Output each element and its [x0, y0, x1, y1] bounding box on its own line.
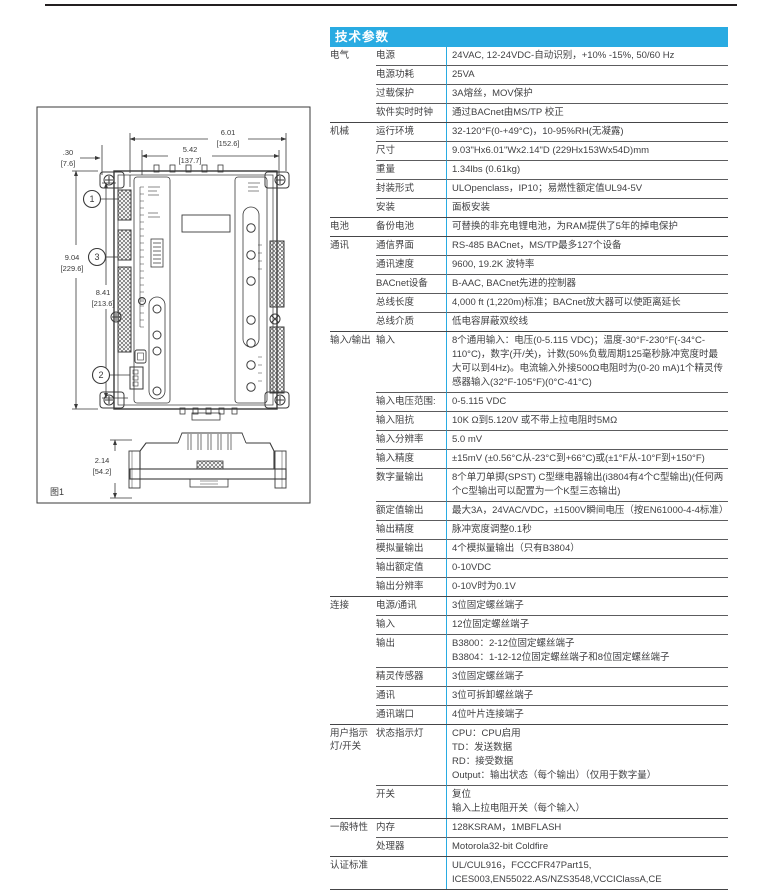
label-cell: 输出分辨率 — [376, 577, 446, 596]
table-row: 尺寸9.03"Hx6.01"Wx2.14"D (229Hx153Wx54D)mm — [330, 141, 728, 160]
label-cell: 处理器 — [376, 837, 446, 856]
value-cell: 0-10VDC — [446, 558, 728, 577]
dim-depth-in: 2.14 — [95, 456, 110, 465]
dim-width-mm: [152.6] — [217, 139, 240, 148]
table-row: 输出分辨率0-10V时为0.1V — [330, 577, 728, 596]
dim-height-in: 9.04 — [65, 253, 80, 262]
spec-group: 认证标准UL/CUL916，FCCCFR47Part15, ICES003,EN… — [330, 856, 728, 889]
label-cell: 内存 — [376, 819, 446, 837]
dimension-labels: 6.01 [152.6] 5.42 [137.7] .30 [7.6] 9.04… — [61, 128, 240, 476]
value-line: 0-10V时为0.1V — [452, 580, 726, 594]
value-line: 3A熔丝，MOV保护 — [452, 87, 726, 101]
spec-group: 用户指示灯/开关状态指示灯CPU：CPU启用TD：发送数据RD：接受数据Outp… — [330, 724, 728, 818]
table-row: 重量1.34lbs (0.61kg) — [330, 160, 728, 179]
value-line: 8个单刀单掷(SPST) C型继电器输出(i3804有4个C型输出)(任何两个C… — [452, 471, 726, 499]
value-line: 低电容屏蔽双绞线 — [452, 315, 726, 329]
category-cell — [330, 430, 376, 449]
value-line: 32-120°F(0-+49°C)，10-95%RH(无凝露) — [452, 125, 726, 139]
category-cell: 连接 — [330, 597, 376, 615]
label-cell: 输入分辨率 — [376, 430, 446, 449]
datasheet-page: { "accent_color": "#29ABE2", "drawing": … — [0, 0, 770, 853]
category-cell — [330, 141, 376, 160]
label-cell: 过载保护 — [376, 84, 446, 103]
value-line: RD：接受数据 — [452, 755, 726, 769]
table-row: 处理器Motorola32-bit Coldfire — [330, 837, 728, 856]
value-line: 4位叶片连接端子 — [452, 708, 726, 722]
table-row: 安装面板安装 — [330, 198, 728, 217]
value-line: 3位固定螺丝端子 — [452, 670, 726, 684]
dim-offset-in: .30 — [63, 148, 73, 157]
value-cell: CPU：CPU启用TD：发送数据RD：接受数据Output：输出状态（每个输出）… — [446, 725, 728, 785]
category-cell — [330, 255, 376, 274]
value-line: Motorola32-bit Coldfire — [452, 840, 726, 854]
svg-text:3: 3 — [94, 252, 99, 262]
label-cell: 输入电压范围: — [376, 392, 446, 411]
label-cell: 输出 — [376, 634, 446, 667]
spec-group: 电气电源24VAC, 12-24VDC-自动识别，+10% -15%, 50/6… — [330, 47, 728, 122]
table-row: 电气电源24VAC, 12-24VDC-自动识别，+10% -15%, 50/6… — [330, 47, 728, 65]
table-row: 总线介质低电容屏蔽双绞线 — [330, 312, 728, 331]
category-cell — [330, 84, 376, 103]
value-line: 最大3A，24VAC/VDC，±1500V瞬间电压（按EN61000-4-4标准… — [452, 504, 726, 518]
category-cell: 用户指示灯/开关 — [330, 725, 376, 785]
label-cell: 电源功耗 — [376, 65, 446, 84]
value-cell: 128KSRAM，1MBFLASH — [446, 819, 728, 837]
spec-group: 连接电源/通讯3位固定螺丝端子输入12位固定螺丝端子输出B3800：2-12位固… — [330, 596, 728, 724]
label-cell: 重量 — [376, 160, 446, 179]
table-row: 输出额定值0-10VDC — [330, 558, 728, 577]
table-row: 封装形式ULOpenclass，IP10；易燃性额定值UL94-5V — [330, 179, 728, 198]
table-row: 通讯3位可拆卸螺丝端子 — [330, 686, 728, 705]
table-row: 一般特性内存128KSRAM，1MBFLASH — [330, 819, 728, 837]
table-row: 通讯通信界面RS-485 BACnet，MS/TP最多127个设备 — [330, 237, 728, 255]
category-cell — [330, 837, 376, 856]
category-cell: 输入/输出 — [330, 332, 376, 392]
spec-group: 机械运行环境32-120°F(0-+49°C)，10-95%RH(无凝露)尺寸9… — [330, 122, 728, 217]
category-cell — [330, 520, 376, 539]
category-cell — [330, 539, 376, 558]
spec-table-body: 电气电源24VAC, 12-24VDC-自动识别，+10% -15%, 50/6… — [330, 47, 728, 890]
label-cell: 电源 — [376, 47, 446, 65]
dim-height-mm: [229.6] — [61, 264, 84, 273]
value-line: 9600, 19.2K 波特率 — [452, 258, 726, 272]
label-window — [182, 215, 230, 232]
category-cell — [330, 468, 376, 501]
category-cell — [330, 179, 376, 198]
category-cell: 认证标准 — [330, 857, 376, 889]
value-line: 128KSRAM，1MBFLASH — [452, 821, 726, 835]
value-cell: 3位固定螺丝端子 — [446, 667, 728, 686]
value-line: B3800：2-12位固定螺丝端子 — [452, 637, 726, 651]
table-row: 额定值输出最大3A，24VAC/VDC，±1500V瞬间电压（按EN61000-… — [330, 501, 728, 520]
value-line: 10K Ω到5.120V 或不带上拉电阻时5MΩ — [452, 414, 726, 428]
value-cell: 可替换的非充电锂电池，为RAM提供了5年的掉电保护 — [446, 218, 728, 236]
table-row: 输入12位固定螺丝端子 — [330, 615, 728, 634]
label-cell: 输入阻抗 — [376, 411, 446, 430]
value-line: 3位固定螺丝端子 — [452, 599, 726, 613]
value-cell: 面板安装 — [446, 198, 728, 217]
value-cell: 3A熔丝，MOV保护 — [446, 84, 728, 103]
front-view — [100, 165, 289, 420]
label-cell: 总线长度 — [376, 293, 446, 312]
drawing-border — [37, 107, 310, 503]
dim-depth-mm: [54.2] — [93, 467, 112, 476]
value-cell: 4位叶片连接端子 — [446, 705, 728, 724]
value-cell: 24VAC, 12-24VDC-自动识别，+10% -15%, 50/60 Hz — [446, 47, 728, 65]
table-row: 软件实时时钟通过BACnet由MS/TP 校正 — [330, 103, 728, 122]
dim-inner-width-mm: [137.7] — [179, 156, 202, 165]
callout-numbers: 1 3 2 — [89, 194, 103, 380]
spec-group: 一般特性内存128KSRAM，1MBFLASH处理器Motorola32-bit… — [330, 818, 728, 856]
value-cell: 3位可拆卸螺丝端子 — [446, 686, 728, 705]
value-cell: 低电容屏蔽双绞线 — [446, 312, 728, 331]
figure-label: 图1 — [50, 487, 64, 497]
label-cell: 通信界面 — [376, 237, 446, 255]
value-line: 12位固定螺丝端子 — [452, 618, 726, 632]
label-cell: 通讯速度 — [376, 255, 446, 274]
label-cell: 输出精度 — [376, 520, 446, 539]
category-cell: 一般特性 — [330, 819, 376, 837]
dim-offset-mm: [7.6] — [61, 159, 76, 168]
table-row: 输入分辨率5.0 mV — [330, 430, 728, 449]
category-cell — [330, 449, 376, 468]
table-row: 精灵传感器3位固定螺丝端子 — [330, 667, 728, 686]
value-cell: ±15mV (±0.56°C从-23°C到+66°C)或(±1°F从-10°F到… — [446, 449, 728, 468]
value-cell: ULOpenclass，IP10；易燃性额定值UL94-5V — [446, 179, 728, 198]
spec-table-title: 技术参数 — [330, 27, 728, 47]
table-row: 通讯端口4位叶片连接端子 — [330, 705, 728, 724]
category-cell — [330, 667, 376, 686]
category-cell: 电气 — [330, 47, 376, 65]
svg-text:1: 1 — [89, 194, 94, 204]
page-top-rule — [45, 4, 737, 6]
dim-inner-width-in: 5.42 — [183, 145, 198, 154]
value-cell: 4个模拟量输出（只有B3804） — [446, 539, 728, 558]
value-line: B3804：1-12-12位固定螺丝端子和8位固定螺丝端子 — [452, 651, 726, 665]
label-cell: 输入 — [376, 332, 446, 392]
value-cell: 4,000 ft (1,220m)标准；BACnet放大器可以使距离延长 — [446, 293, 728, 312]
value-line: 5.0 mV — [452, 433, 726, 447]
label-cell: 备份电池 — [376, 218, 446, 236]
value-line: TD：发送数据 — [452, 741, 726, 755]
category-cell — [330, 312, 376, 331]
value-line: CPU：CPU启用 — [452, 727, 726, 741]
table-row: 过载保护3A熔丝，MOV保护 — [330, 84, 728, 103]
value-line: 4,000 ft (1,220m)标准；BACnet放大器可以使距离延长 — [452, 296, 726, 310]
label-cell: 状态指示灯 — [376, 725, 446, 785]
label-cell: 开关 — [376, 785, 446, 818]
value-line: Output：输出状态（每个输出）（仅用于数字量） — [452, 769, 726, 783]
category-cell — [330, 411, 376, 430]
label-cell: BACnet设备 — [376, 274, 446, 293]
value-cell: B-AAC, BACnet先进的控制器 — [446, 274, 728, 293]
value-cell: Motorola32-bit Coldfire — [446, 837, 728, 856]
label-cell: 通讯端口 — [376, 705, 446, 724]
table-row: 输入/输出输入8个通用输入：电压(0-5.115 VDC)；温度-30°F-23… — [330, 332, 728, 392]
category-cell — [330, 103, 376, 122]
value-line: UL/CUL916，FCCCFR47Part15, ICES003,EN5502… — [452, 859, 726, 887]
value-line: 复位 — [452, 788, 726, 802]
value-cell: UL/CUL916，FCCCFR47Part15, ICES003,EN5502… — [446, 857, 728, 889]
svg-text:2: 2 — [98, 370, 103, 380]
terminal-block-icon — [118, 190, 131, 352]
value-cell: 8个通用输入：电压(0-5.115 VDC)；温度-30°F-230°F(-34… — [446, 332, 728, 392]
table-row: 开关复位输入上拉电阻开关（每个输入） — [330, 785, 728, 818]
value-line: 8个通用输入：电压(0-5.115 VDC)；温度-30°F-230°F(-34… — [452, 334, 726, 390]
value-line: 0-5.115 VDC — [452, 395, 726, 409]
value-cell: 复位输入上拉电阻开关（每个输入） — [446, 785, 728, 818]
category-cell — [330, 577, 376, 596]
table-row: 机械运行环境32-120°F(0-+49°C)，10-95%RH(无凝露) — [330, 123, 728, 141]
table-row: BACnet设备B-AAC, BACnet先进的控制器 — [330, 274, 728, 293]
value-cell: 8个单刀单掷(SPST) C型继电器输出(i3804有4个C型输出)(任何两个C… — [446, 468, 728, 501]
table-row: 总线长度4,000 ft (1,220m)标准；BACnet放大器可以使距离延长 — [330, 293, 728, 312]
label-cell: 数字量输出 — [376, 468, 446, 501]
label-cell: 尺寸 — [376, 141, 446, 160]
value-cell: 10K Ω到5.120V 或不带上拉电阻时5MΩ — [446, 411, 728, 430]
category-cell: 通讯 — [330, 237, 376, 255]
drawing-svg: 6.01 [152.6] 5.42 [137.7] .30 [7.6] 9.04… — [30, 95, 325, 515]
label-cell: 电源/通讯 — [376, 597, 446, 615]
label-cell: 额定值输出 — [376, 501, 446, 520]
technical-drawing: 6.01 [152.6] 5.42 [137.7] .30 [7.6] 9.04… — [30, 95, 325, 515]
table-row: 模拟量输出4个模拟量输出（只有B3804） — [330, 539, 728, 558]
label-cell: 封装形式 — [376, 179, 446, 198]
value-cell: 9600, 19.2K 波特率 — [446, 255, 728, 274]
category-cell: 机械 — [330, 123, 376, 141]
spec-group: 输入/输出输入8个通用输入：电压(0-5.115 VDC)；温度-30°F-23… — [330, 331, 728, 596]
value-line: 3位可拆卸螺丝端子 — [452, 689, 726, 703]
value-line: 24VAC, 12-24VDC-自动识别，+10% -15%, 50/60 Hz — [452, 49, 726, 63]
value-line: 可替换的非充电锂电池，为RAM提供了5年的掉电保护 — [452, 220, 726, 234]
label-cell: 输入精度 — [376, 449, 446, 468]
category-cell — [330, 65, 376, 84]
value-cell: 25VA — [446, 65, 728, 84]
table-row: 连接电源/通讯3位固定螺丝端子 — [330, 597, 728, 615]
category-cell: 电池 — [330, 218, 376, 236]
category-cell — [330, 558, 376, 577]
value-line: RS-485 BACnet，MS/TP最多127个设备 — [452, 239, 726, 253]
value-cell: 脉冲宽度调整0.1秒 — [446, 520, 728, 539]
value-cell: B3800：2-12位固定螺丝端子B3804：1-12-12位固定螺丝端子和8位… — [446, 634, 728, 667]
dim-inner-height-mm: [213.6] — [92, 299, 115, 308]
value-line: 25VA — [452, 68, 726, 82]
label-cell: 安装 — [376, 198, 446, 217]
category-cell — [330, 274, 376, 293]
table-row: 认证标准UL/CUL916，FCCCFR47Part15, ICES003,EN… — [330, 857, 728, 889]
value-cell: 通过BACnet由MS/TP 校正 — [446, 103, 728, 122]
value-cell: 5.0 mV — [446, 430, 728, 449]
category-cell — [330, 785, 376, 818]
category-cell — [330, 615, 376, 634]
value-line: 4个模拟量输出（只有B3804） — [452, 542, 726, 556]
table-row: 电源功耗25VA — [330, 65, 728, 84]
category-cell — [330, 198, 376, 217]
value-cell: 9.03"Hx6.01"Wx2.14"D (229Hx153Wx54D)mm — [446, 141, 728, 160]
spec-group: 通讯通信界面RS-485 BACnet，MS/TP最多127个设备通讯速度960… — [330, 236, 728, 331]
category-cell — [330, 634, 376, 667]
value-line: 0-10VDC — [452, 561, 726, 575]
value-line: B-AAC, BACnet先进的控制器 — [452, 277, 726, 291]
table-row: 输出精度脉冲宽度调整0.1秒 — [330, 520, 728, 539]
label-cell: 输入 — [376, 615, 446, 634]
category-cell — [330, 705, 376, 724]
table-row: 输入电压范围:0-5.115 VDC — [330, 392, 728, 411]
label-cell: 总线介质 — [376, 312, 446, 331]
label-cell: 运行环境 — [376, 123, 446, 141]
value-cell: RS-485 BACnet，MS/TP最多127个设备 — [446, 237, 728, 255]
category-cell — [330, 392, 376, 411]
label-cell: 输出额定值 — [376, 558, 446, 577]
value-cell: 3位固定螺丝端子 — [446, 597, 728, 615]
table-row: 输出B3800：2-12位固定螺丝端子B3804：1-12-12位固定螺丝端子和… — [330, 634, 728, 667]
table-row: 数字量输出8个单刀单掷(SPST) C型继电器输出(i3804有4个C型输出)(… — [330, 468, 728, 501]
value-line: ±15mV (±0.56°C从-23°C到+66°C)或(±1°F从-10°F到… — [452, 452, 726, 466]
value-cell: 12位固定螺丝端子 — [446, 615, 728, 634]
value-cell: 0-10V时为0.1V — [446, 577, 728, 596]
value-line: 脉冲宽度调整0.1秒 — [452, 523, 726, 537]
dim-width-in: 6.01 — [221, 128, 236, 137]
value-line: ULOpenclass，IP10；易燃性额定值UL94-5V — [452, 182, 726, 196]
label-cell — [376, 857, 446, 889]
table-row: 电池备份电池可替换的非充电锂电池，为RAM提供了5年的掉电保护 — [330, 218, 728, 236]
label-cell: 通讯 — [376, 686, 446, 705]
label-cell: 精灵传感器 — [376, 667, 446, 686]
side-view — [110, 433, 286, 498]
value-line: 输入上拉电阻开关（每个输入） — [452, 802, 726, 816]
table-row: 输入精度±15mV (±0.56°C从-23°C到+66°C)或(±1°F从-1… — [330, 449, 728, 468]
table-row: 用户指示灯/开关状态指示灯CPU：CPU启用TD：发送数据RD：接受数据Outp… — [330, 725, 728, 785]
category-cell — [330, 293, 376, 312]
value-line: 9.03"Hx6.01"Wx2.14"D (229Hx153Wx54D)mm — [452, 144, 726, 158]
value-cell: 32-120°F(0-+49°C)，10-95%RH(无凝露) — [446, 123, 728, 141]
value-line: 1.34lbs (0.61kg) — [452, 163, 726, 177]
label-cell: 模拟量输出 — [376, 539, 446, 558]
value-cell: 最大3A，24VAC/VDC，±1500V瞬间电压（按EN61000-4-4标准… — [446, 501, 728, 520]
value-cell: 1.34lbs (0.61kg) — [446, 160, 728, 179]
category-cell — [330, 160, 376, 179]
category-cell — [330, 686, 376, 705]
value-line: 通过BACnet由MS/TP 校正 — [452, 106, 726, 120]
dim-inner-height-in: 8.41 — [96, 288, 111, 297]
spec-group: 电池备份电池可替换的非充电锂电池，为RAM提供了5年的掉电保护 — [330, 217, 728, 236]
table-row: 输入阻抗10K Ω到5.120V 或不带上拉电阻时5MΩ — [330, 411, 728, 430]
label-cell: 软件实时时钟 — [376, 103, 446, 122]
spec-table: 技术参数 电气电源24VAC, 12-24VDC-自动识别，+10% -15%,… — [330, 27, 728, 890]
table-row: 通讯速度9600, 19.2K 波特率 — [330, 255, 728, 274]
value-cell: 0-5.115 VDC — [446, 392, 728, 411]
category-cell — [330, 501, 376, 520]
value-line: 面板安装 — [452, 201, 726, 215]
